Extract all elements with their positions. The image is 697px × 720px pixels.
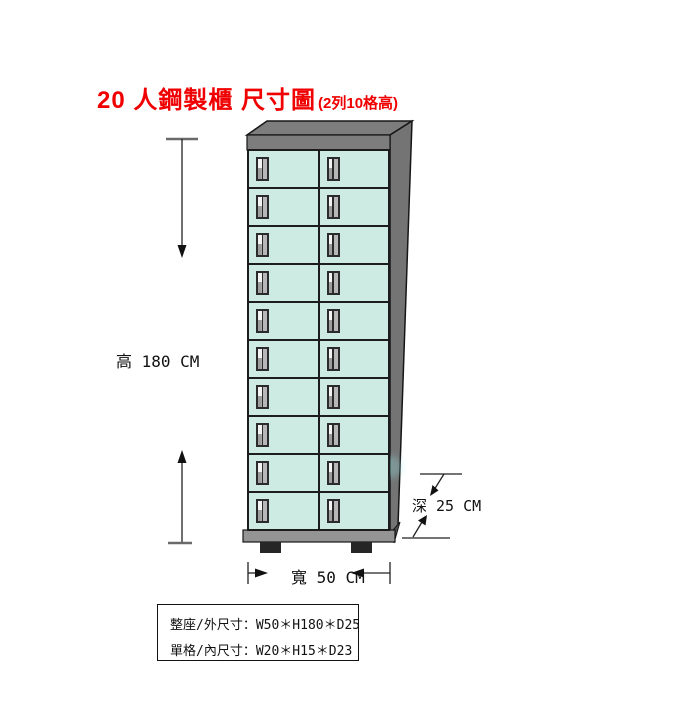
- diagram-page: 20 人鋼製櫃 尺寸圖(2列10格高): [0, 0, 697, 720]
- depth-dimension-label: 深 25 CM: [412, 495, 481, 516]
- locker-door: [320, 493, 389, 529]
- door-lock-handle: [256, 157, 269, 181]
- spec-row-inner-size: 單格/內尺寸：W20＊H15＊D23: [170, 640, 358, 659]
- depth-dim-upper-diagonal: [434, 474, 444, 490]
- locker-door: [249, 227, 318, 263]
- depth-dim-up-right-arrow: [418, 515, 427, 526]
- door-lock-handle: [327, 347, 340, 371]
- locker-door: [320, 265, 389, 301]
- cabinet-foot-left: [260, 542, 281, 553]
- height-dim-down-arrow: [178, 245, 187, 258]
- depth-dim-lower-diagonal: [413, 522, 422, 537]
- locker-door: [320, 341, 389, 377]
- height-dimension: [166, 139, 198, 543]
- door-lock-handle: [327, 385, 340, 409]
- locker-door: [249, 417, 318, 453]
- locker-door: [320, 151, 389, 187]
- door-lock-handle: [256, 271, 269, 295]
- door-lock-handle: [327, 309, 340, 333]
- door-lock-handle: [256, 385, 269, 409]
- door-lock-handle: [256, 499, 269, 523]
- door-lock-handle: [256, 195, 269, 219]
- cabinet-top-frame: [247, 135, 390, 150]
- door-lock-handle: [256, 423, 269, 447]
- door-lock-handle: [256, 309, 269, 333]
- width-dimension-label: 寬 50 CM: [291, 564, 365, 588]
- door-lock-handle: [327, 195, 340, 219]
- spec-row-outer-size: 整座/外尺寸：W50＊H180＊D25: [170, 614, 358, 633]
- locker-door: [249, 265, 318, 301]
- door-lock-handle: [327, 461, 340, 485]
- cabinet-top-face: [247, 121, 412, 135]
- locker-door: [320, 227, 389, 263]
- door-lock-handle: [327, 423, 340, 447]
- door-lock-handle: [256, 461, 269, 485]
- spec-table: 整座/外尺寸：W50＊H180＊D25 單格/內尺寸：W20＊H15＊D23: [157, 604, 359, 661]
- cabinet-foot-right: [351, 542, 372, 553]
- locker-door: [249, 303, 318, 339]
- cabinet-base: [243, 530, 395, 542]
- door-lock-handle: [256, 233, 269, 257]
- door-lock-handle: [327, 157, 340, 181]
- locker-door: [320, 379, 389, 415]
- locker-door: [249, 189, 318, 225]
- locker-door: [249, 379, 318, 415]
- door-lock-handle: [327, 499, 340, 523]
- locker-door: [249, 493, 318, 529]
- locker-door: [320, 189, 389, 225]
- locker-door: [249, 151, 318, 187]
- locker-door: [320, 455, 389, 491]
- door-lock-handle: [327, 233, 340, 257]
- height-dimension-label: 高 180 CM: [116, 348, 199, 372]
- width-dim-right-arrow: [255, 569, 268, 578]
- locker-door: [249, 455, 318, 491]
- locker-grid: [247, 149, 390, 531]
- locker-door: [249, 341, 318, 377]
- locker-door: [320, 303, 389, 339]
- height-dim-up-arrow: [178, 450, 187, 463]
- door-lock-handle: [256, 347, 269, 371]
- door-lock-handle: [327, 271, 340, 295]
- locker-door: [320, 417, 389, 453]
